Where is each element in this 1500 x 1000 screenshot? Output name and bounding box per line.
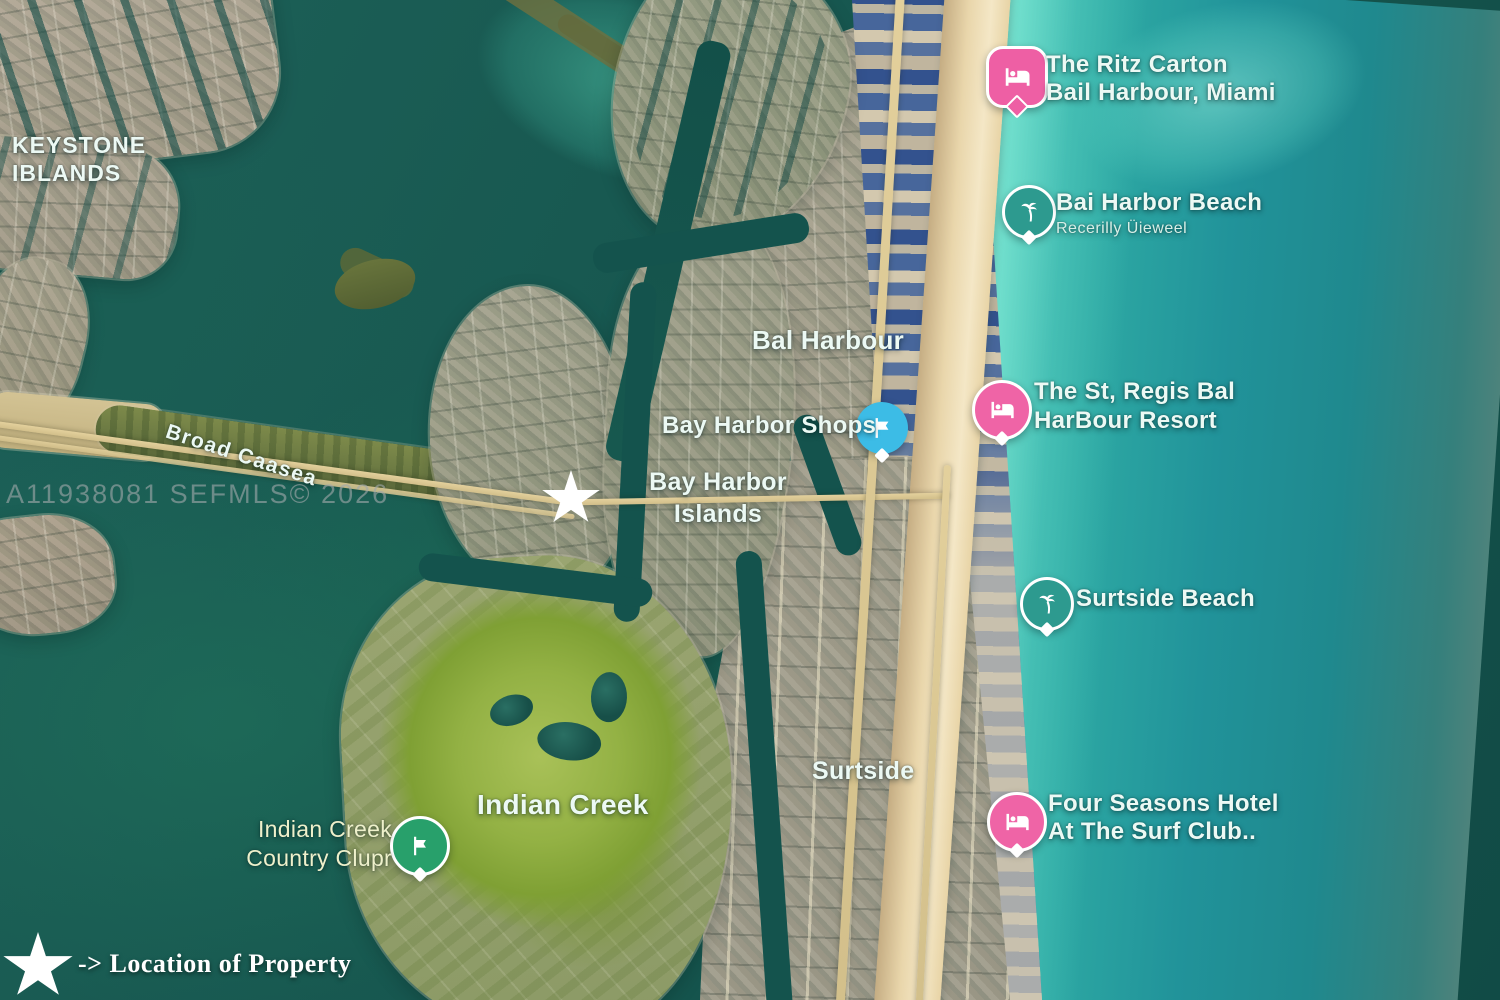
country-club-pin (390, 816, 450, 876)
label-line: KEYSTONE (12, 131, 146, 159)
golf-pond (486, 689, 537, 731)
beach-pin-icon (1016, 199, 1042, 225)
label-keystone-islands: KEYSTONE IBLANDS (12, 131, 146, 187)
label-bay-harbor-islands: Bay Harbor Islands (628, 466, 808, 530)
label-bal-harbour: Bal Harbour (752, 325, 904, 356)
label-line: Islands (628, 498, 808, 530)
label-line: The Ritz Carton (1046, 51, 1276, 79)
label-line: Bay Harbor (628, 466, 808, 498)
bed-icon (1003, 808, 1031, 836)
label-four-seasons: Four Seasons Hotel At The Surf Club.. (1048, 790, 1279, 846)
four-seasons-pin (987, 792, 1047, 852)
bed-icon (988, 396, 1016, 424)
label-line: The St, Regis Bal (1034, 377, 1235, 406)
golf-pond (590, 672, 628, 723)
mls-watermark: A11938081 SEFMLS© 2026 (6, 479, 389, 510)
label-bal-harbor-beach: Bai Harbor Beach Recerilly Üieweel (1056, 189, 1262, 238)
label-indian-creek-country-club: Indian Creek Country Clupr (240, 815, 392, 873)
label-line: HarBour Resort (1034, 406, 1235, 435)
golf-pond (535, 719, 603, 765)
label-line: Country Clupr (240, 844, 392, 873)
aerial-map: KEYSTONE IBLANDS Broad Caasea Bal Harbou… (0, 0, 1500, 1000)
label-ritz-carlton: The Ritz Carton Bail Harbour, Miami (1046, 51, 1276, 107)
st-regis-pin (972, 380, 1032, 440)
ritz-carlton-pin (986, 46, 1048, 108)
bal-harbor-beach-pin (1002, 185, 1056, 239)
label-subtitle: Recerilly Üieweel (1056, 220, 1262, 238)
label-line: Four Seasons Hotel (1048, 790, 1279, 818)
label-line: Bail Harbour, Miami (1046, 79, 1276, 107)
surfside-beach-pin (1020, 577, 1074, 631)
label-indian-creek: Indian Creek (477, 789, 649, 821)
label-bay-harbor-shops: Bay Harbor Shops (662, 412, 876, 440)
label-surfside-beach: Surtside Beach (1076, 585, 1255, 613)
label-line: Indian Creek (240, 815, 392, 844)
beach-pin-icon (1034, 591, 1060, 617)
legend-location-text: -> Location of Property (78, 949, 352, 979)
label-line: IBLANDS (12, 159, 146, 187)
golf-flag-icon (407, 833, 433, 859)
bed-icon (1002, 62, 1032, 92)
label-line: At The Surf Club.. (1048, 818, 1279, 846)
label-st-regis: The St, Regis Bal HarBour Resort (1034, 377, 1235, 435)
label-title: Bai Harbor Beach (1056, 189, 1262, 217)
label-surfside: Surtside (812, 757, 914, 786)
